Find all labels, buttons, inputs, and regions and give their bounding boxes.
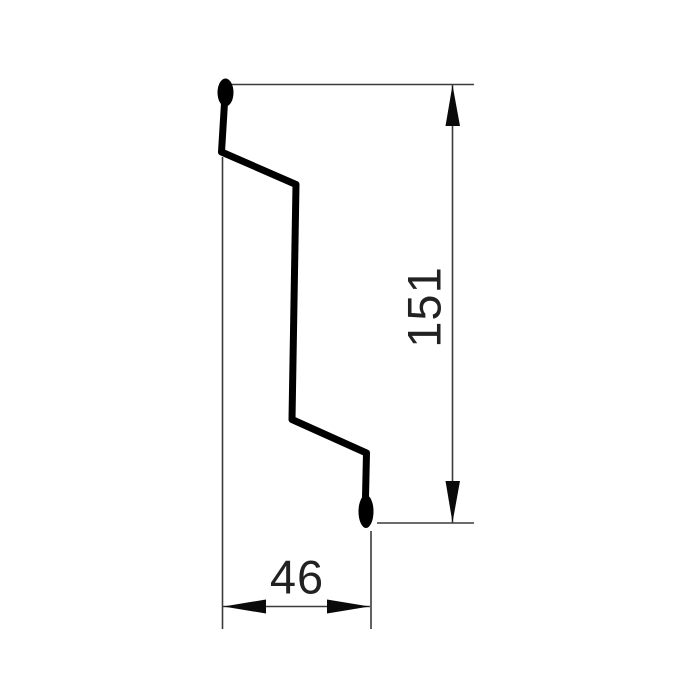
top-hem-bulb bbox=[218, 79, 234, 107]
left-arrowhead-icon bbox=[224, 600, 267, 614]
profile-drawing bbox=[0, 0, 700, 700]
down-arrowhead-icon bbox=[446, 481, 461, 523]
profile-outline bbox=[222, 103, 367, 497]
drawing-canvas: 151 46 bbox=[0, 0, 700, 700]
bottom-hem-bulb bbox=[359, 495, 374, 528]
width-dimension-label: 46 bbox=[270, 554, 324, 601]
right-arrowhead-icon bbox=[327, 600, 370, 614]
height-dimension-label: 151 bbox=[401, 266, 448, 347]
up-arrowhead-icon bbox=[446, 85, 461, 126]
